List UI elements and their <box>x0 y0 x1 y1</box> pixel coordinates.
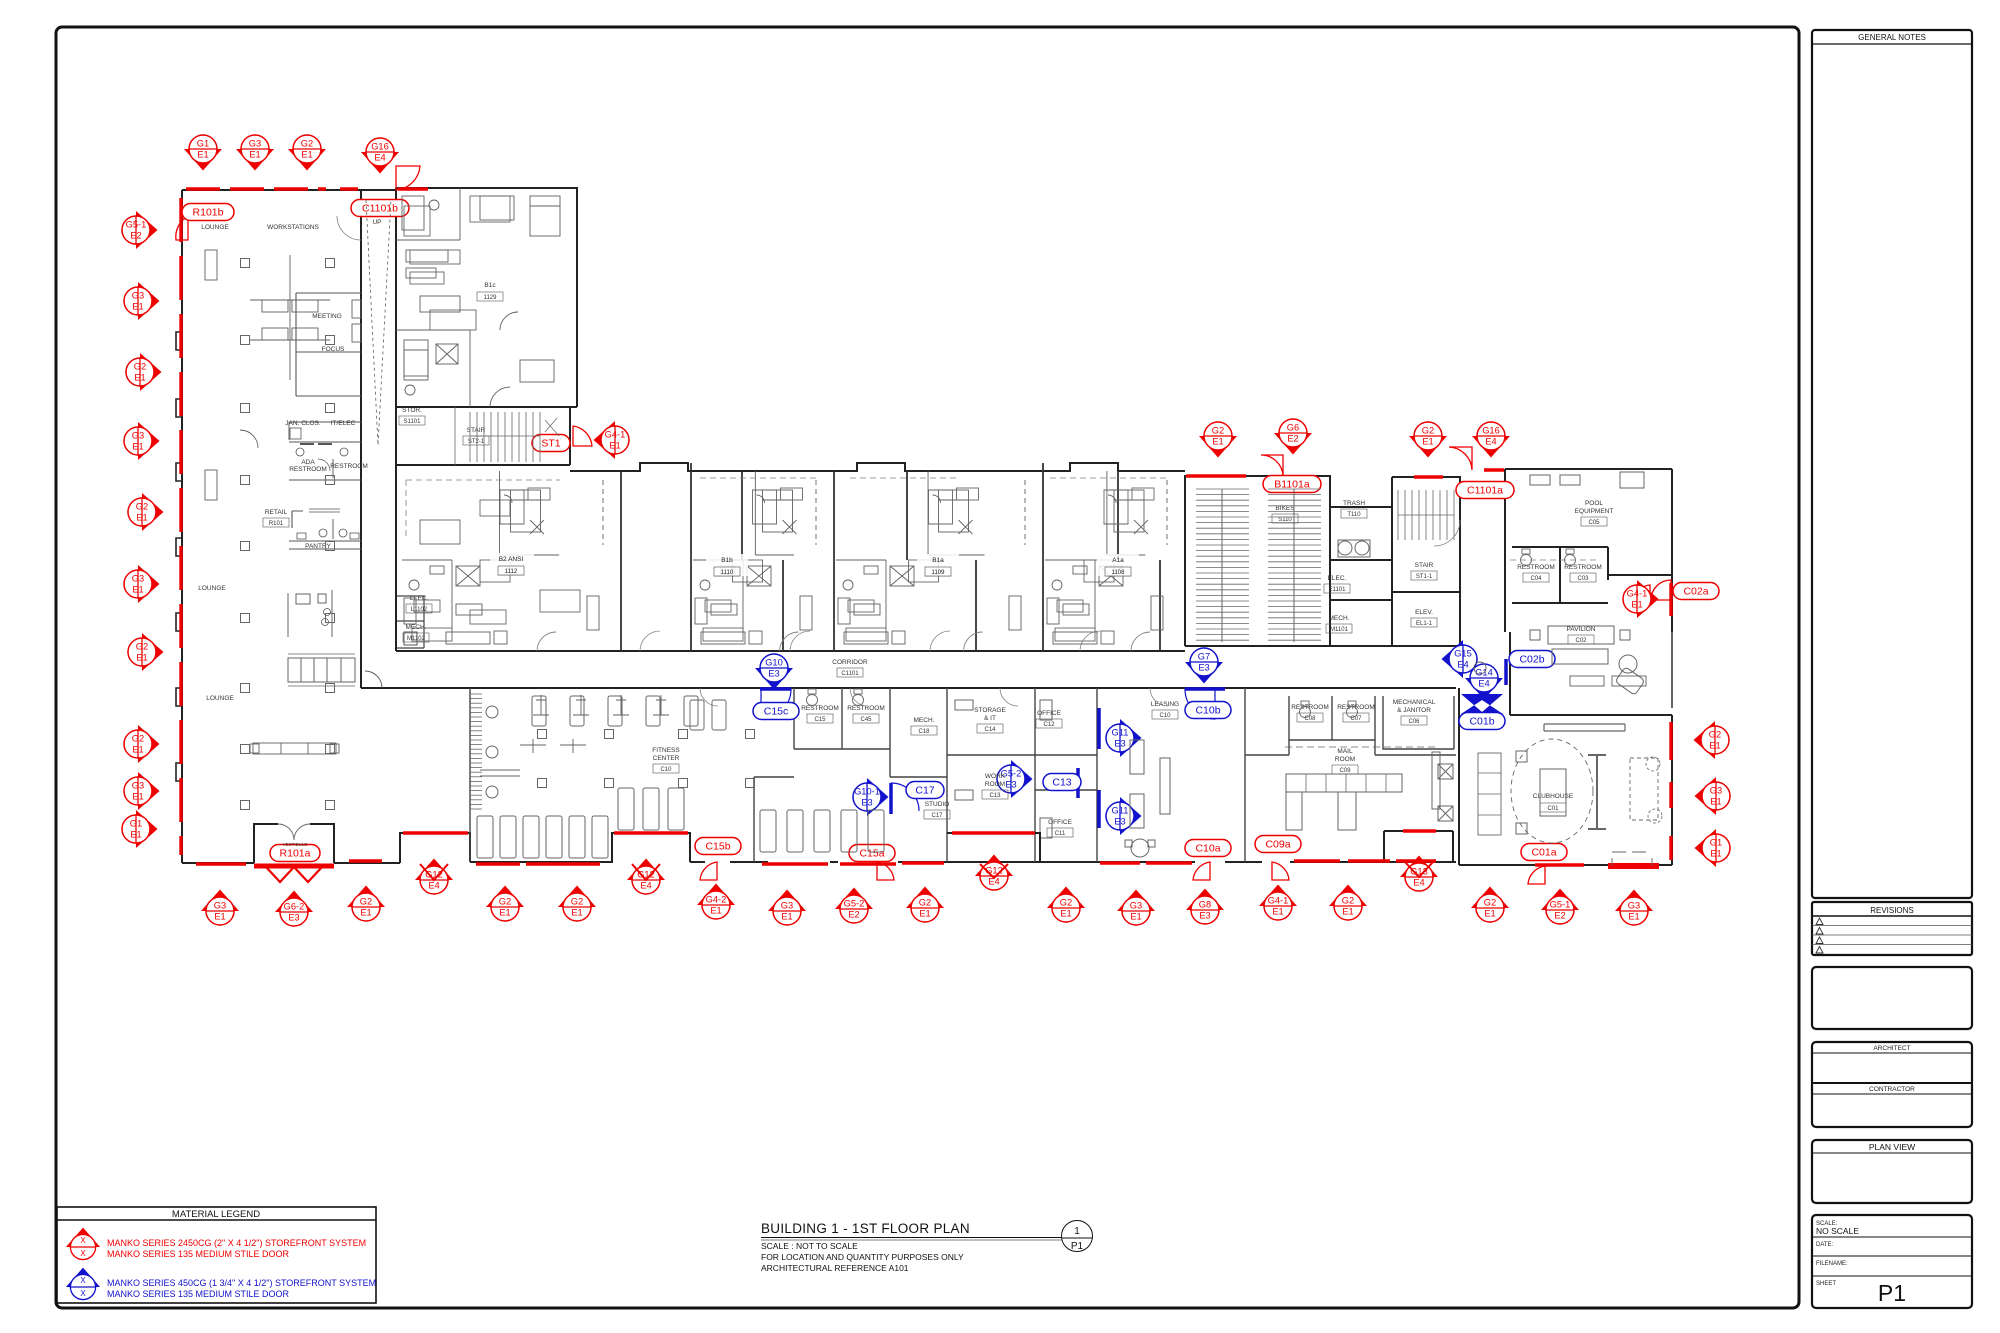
svg-text:DATE:: DATE: <box>1816 1242 1834 1248</box>
svg-text:G12: G12 <box>637 870 655 880</box>
svg-text:G11: G11 <box>1112 728 1129 738</box>
svg-text:G12: G12 <box>425 870 443 880</box>
svg-text:E2: E2 <box>848 910 859 920</box>
svg-text:C09a: C09a <box>1265 839 1290 851</box>
svg-text:C15: C15 <box>814 717 826 723</box>
svg-text:RESTROOM: RESTROOM <box>1517 564 1555 571</box>
svg-text:G8: G8 <box>1199 900 1211 910</box>
svg-text:T110: T110 <box>1347 512 1361 518</box>
svg-text:C12: C12 <box>1043 722 1055 728</box>
svg-text:PANTRY: PANTRY <box>305 543 331 550</box>
svg-text:C1101b: C1101b <box>362 203 398 215</box>
svg-text:C01: C01 <box>1547 806 1559 812</box>
svg-text:C15a: C15a <box>859 848 884 860</box>
svg-text:NO SCALE: NO SCALE <box>1816 1226 1859 1236</box>
svg-text:G2: G2 <box>301 139 313 149</box>
svg-text:E1: E1 <box>249 150 260 160</box>
svg-text:E1: E1 <box>710 906 721 916</box>
svg-text:G4-1: G4-1 <box>1268 896 1289 906</box>
svg-text:X: X <box>80 1289 86 1298</box>
svg-text:E3: E3 <box>768 669 779 679</box>
svg-text:G2: G2 <box>1212 426 1224 436</box>
svg-text:G1: G1 <box>197 139 209 149</box>
svg-text:G3: G3 <box>1628 901 1640 911</box>
svg-text:G4-1: G4-1 <box>1627 589 1648 599</box>
svg-text:G3: G3 <box>1710 786 1722 796</box>
svg-text:E3: E3 <box>1005 780 1016 790</box>
svg-text:MECH.: MECH. <box>914 717 935 724</box>
svg-text:BUILDING 1 - 1ST FLOOR PLAN: BUILDING 1 - 1ST FLOOR PLAN <box>761 1221 970 1236</box>
svg-text:E1: E1 <box>214 912 225 922</box>
svg-text:C18: C18 <box>918 729 930 735</box>
svg-text:E1: E1 <box>1484 909 1495 919</box>
svg-text:G3: G3 <box>132 431 144 441</box>
svg-text:G2: G2 <box>1484 898 1496 908</box>
svg-text:E1: E1 <box>1709 741 1720 751</box>
svg-text:C1101a: C1101a <box>1467 485 1503 497</box>
svg-text:MANKO SERIES 450CG (1 3/4" X 4: MANKO SERIES 450CG (1 3/4" X 4 1/2") STO… <box>107 1278 376 1288</box>
svg-text:E1: E1 <box>1130 912 1141 922</box>
svg-text:MEETING: MEETING <box>312 313 342 320</box>
svg-text:C10b: C10b <box>1195 705 1220 717</box>
svg-text:E1: E1 <box>1212 437 1223 447</box>
svg-text:E1: E1 <box>609 441 620 451</box>
svg-text:E1: E1 <box>1422 437 1433 447</box>
svg-text:VESTIBULE: VESTIBULE <box>283 842 308 847</box>
svg-text:STAIR: STAIR <box>1415 562 1434 569</box>
svg-text:E1: E1 <box>571 908 582 918</box>
svg-text:SHEET: SHEET <box>1816 1281 1836 1287</box>
svg-text:E1: E1 <box>134 373 145 383</box>
svg-text:C17: C17 <box>931 813 943 819</box>
svg-text:WORKSTATIONS: WORKSTATIONS <box>267 224 319 231</box>
svg-text:B1c: B1c <box>484 282 496 289</box>
svg-text:C10: C10 <box>1159 713 1171 719</box>
svg-text:FOR LOCATION AND QUANTITY PURP: FOR LOCATION AND QUANTITY PURPOSES ONLY <box>761 1252 964 1262</box>
svg-text:G2: G2 <box>134 362 146 372</box>
svg-text:E1: E1 <box>919 909 930 919</box>
svg-text:FITNESS: FITNESS <box>652 747 680 754</box>
svg-text:R101b: R101b <box>193 207 224 219</box>
svg-text:MANKO SERIES 135 MEDIUM STILE: MANKO SERIES 135 MEDIUM STILE DOOR <box>107 1289 290 1299</box>
svg-text:E2: E2 <box>1287 434 1298 444</box>
svg-text:E1: E1 <box>1342 907 1353 917</box>
svg-text:E1: E1 <box>1060 909 1071 919</box>
svg-text:G5-2: G5-2 <box>844 899 865 909</box>
svg-text:E1: E1 <box>136 513 147 523</box>
svg-text:E3: E3 <box>861 798 872 808</box>
svg-text:G2: G2 <box>360 897 372 907</box>
svg-text:STOR.: STOR. <box>402 407 422 414</box>
svg-text:E2: E2 <box>1554 911 1565 921</box>
svg-text:R101: R101 <box>269 521 284 527</box>
svg-text:MANKO SERIES 135 MEDIUM STILE: MANKO SERIES 135 MEDIUM STILE DOOR <box>107 1249 290 1259</box>
svg-text:E2: E2 <box>130 231 141 241</box>
svg-text:E1: E1 <box>197 150 208 160</box>
svg-text:G3: G3 <box>132 291 144 301</box>
svg-text:ST1-1: ST1-1 <box>1416 574 1433 580</box>
svg-text:B1a: B1a <box>932 557 944 564</box>
svg-text:E1: E1 <box>132 302 143 312</box>
svg-text:C11: C11 <box>1055 831 1066 837</box>
svg-text:1: 1 <box>1074 1226 1080 1237</box>
svg-text:E1: E1 <box>132 745 143 755</box>
svg-text:C04: C04 <box>1530 576 1542 582</box>
svg-text:G2: G2 <box>571 897 583 907</box>
svg-text:E1: E1 <box>132 585 143 595</box>
svg-text:C14: C14 <box>984 727 996 733</box>
svg-text:G6-2: G6-2 <box>284 902 305 912</box>
svg-text:ELEC.: ELEC. <box>410 595 429 602</box>
svg-text:C10a: C10a <box>1195 843 1220 855</box>
svg-text:G10: G10 <box>765 658 783 668</box>
svg-text:FILENAME:: FILENAME: <box>1816 1261 1848 1267</box>
svg-text:MANKO SERIES 2450CG (2" X 4 1/: MANKO SERIES 2450CG (2" X 4 1/2") STOREF… <box>107 1238 366 1248</box>
svg-text:E4: E4 <box>640 881 651 891</box>
svg-text:SCALE : NOT TO SCALE: SCALE : NOT TO SCALE <box>761 1241 858 1251</box>
svg-text:STAIR: STAIR <box>467 427 486 434</box>
svg-text:ELEV.: ELEV. <box>1415 609 1433 616</box>
svg-text:C10: C10 <box>660 767 672 773</box>
svg-text:E3: E3 <box>1198 663 1209 673</box>
svg-text:STUDIO: STUDIO <box>925 801 950 808</box>
svg-text:C1101: C1101 <box>841 671 859 677</box>
svg-text:E3: E3 <box>1114 817 1125 827</box>
svg-text:E1: E1 <box>1710 797 1721 807</box>
svg-text:1129: 1129 <box>484 295 498 301</box>
svg-text:E1: E1 <box>130 830 141 840</box>
svg-text:G3: G3 <box>781 901 793 911</box>
svg-text:C07: C07 <box>1350 716 1362 722</box>
svg-text:C05: C05 <box>1588 520 1600 526</box>
svg-text:X: X <box>80 1249 86 1258</box>
svg-text:ELEC.: ELEC. <box>1328 575 1347 582</box>
svg-text:C13: C13 <box>989 793 1001 799</box>
svg-text:M1101: M1101 <box>1330 627 1349 633</box>
svg-text:C02a: C02a <box>1683 586 1708 598</box>
svg-text:C03: C03 <box>1577 576 1589 582</box>
svg-text:ST1: ST1 <box>541 438 560 450</box>
svg-text:CENTER: CENTER <box>653 755 680 762</box>
svg-text:E4: E4 <box>428 881 439 891</box>
svg-text:E4: E4 <box>1413 878 1424 888</box>
svg-text:G2: G2 <box>1422 426 1434 436</box>
svg-text:G2: G2 <box>1060 898 1072 908</box>
svg-text:ARCHITECTURAL REFERENCE A101: ARCHITECTURAL REFERENCE A101 <box>761 1263 909 1273</box>
svg-text:G1: G1 <box>130 819 142 829</box>
svg-text:WORK: WORK <box>985 773 1006 780</box>
svg-text:E1: E1 <box>132 442 143 452</box>
svg-text:A1a: A1a <box>1112 557 1124 564</box>
svg-text:GENERAL NOTES: GENERAL NOTES <box>1858 33 1926 42</box>
svg-text:CONTRACTOR: CONTRACTOR <box>1869 1086 1915 1093</box>
svg-text:G1: G1 <box>1710 838 1722 848</box>
svg-text:E1: E1 <box>301 150 312 160</box>
svg-text:& IT: & IT <box>984 715 996 722</box>
svg-text:G2: G2 <box>1342 896 1354 906</box>
svg-text:C02b: C02b <box>1519 654 1544 666</box>
svg-text:C02: C02 <box>1575 638 1587 644</box>
svg-text:E3: E3 <box>288 913 299 923</box>
svg-text:P1: P1 <box>1878 1280 1906 1306</box>
svg-text:ROOM: ROOM <box>1335 756 1355 763</box>
svg-text:& JANITOR: & JANITOR <box>1397 707 1431 714</box>
svg-text:S110: S110 <box>1278 517 1292 523</box>
svg-text:C09: C09 <box>1339 768 1351 774</box>
svg-text:PAVILION: PAVILION <box>1566 626 1595 633</box>
svg-text:EQUIPMENT: EQUIPMENT <box>1575 508 1614 515</box>
svg-text:C01b: C01b <box>1469 716 1494 728</box>
svg-text:G6: G6 <box>1287 423 1299 433</box>
svg-text:1110: 1110 <box>721 570 734 576</box>
svg-text:1108: 1108 <box>1112 570 1126 576</box>
svg-text:ROOM: ROOM <box>985 781 1005 788</box>
svg-text:B2 ANSI: B2 ANSI <box>499 556 524 563</box>
svg-text:CLUBHOUSE: CLUBHOUSE <box>1533 793 1574 800</box>
svg-text:G3: G3 <box>1130 901 1142 911</box>
svg-text:E1: E1 <box>1628 912 1639 922</box>
svg-text:E1: E1 <box>1272 907 1283 917</box>
svg-text:E4: E4 <box>1485 437 1496 447</box>
svg-text:TRASH: TRASH <box>1343 500 1365 507</box>
svg-text:FOCUS: FOCUS <box>322 346 345 353</box>
svg-text:E4: E4 <box>374 153 385 163</box>
svg-text:C13: C13 <box>1052 777 1071 789</box>
svg-text:G5-1: G5-1 <box>1550 900 1571 910</box>
svg-text:MAIL: MAIL <box>1337 748 1353 755</box>
svg-text:R101a: R101a <box>280 848 311 860</box>
svg-text:1112: 1112 <box>505 569 518 575</box>
svg-text:RESTROOM: RESTROOM <box>330 463 368 470</box>
svg-text:B1b: B1b <box>721 557 733 564</box>
svg-text:OFFICE: OFFICE <box>1037 710 1061 717</box>
svg-text:G10-1: G10-1 <box>854 787 880 797</box>
svg-text:G4-1: G4-1 <box>605 430 626 440</box>
svg-text:CORRIDOR: CORRIDOR <box>832 659 868 666</box>
svg-text:G2: G2 <box>136 642 148 652</box>
svg-text:LOUNGE: LOUNGE <box>206 695 234 702</box>
svg-text:RESTROOM: RESTROOM <box>289 466 327 473</box>
svg-text:X: X <box>80 1276 86 1285</box>
svg-text:MATERIAL LEGEND: MATERIAL LEGEND <box>172 1209 260 1220</box>
svg-text:MECH.: MECH. <box>1329 615 1350 622</box>
svg-text:C01a: C01a <box>1531 847 1556 859</box>
svg-text:MECHANICAL: MECHANICAL <box>1393 699 1436 706</box>
svg-text:E1: E1 <box>136 653 147 663</box>
svg-text:G3: G3 <box>132 574 144 584</box>
svg-text:E1: E1 <box>499 908 510 918</box>
svg-text:E4: E4 <box>1457 660 1468 670</box>
svg-text:C15c: C15c <box>764 706 789 718</box>
svg-text:E1: E1 <box>360 908 371 918</box>
svg-text:C17: C17 <box>915 785 934 797</box>
svg-text:G2: G2 <box>132 734 144 744</box>
svg-text:G2: G2 <box>499 897 511 907</box>
svg-text:G5-1: G5-1 <box>126 220 147 230</box>
svg-text:E3: E3 <box>1114 739 1125 749</box>
svg-text:E1: E1 <box>132 792 143 802</box>
svg-text:G4-2: G4-2 <box>706 895 727 905</box>
svg-text:IT/ELEC: IT/ELEC <box>331 420 356 427</box>
svg-text:G7: G7 <box>1198 652 1210 662</box>
svg-text:POOL: POOL <box>1585 500 1603 507</box>
svg-text:E1: E1 <box>781 912 792 922</box>
svg-text:G15: G15 <box>1454 649 1472 659</box>
svg-text:REVISIONS: REVISIONS <box>1870 906 1914 915</box>
svg-text:P1: P1 <box>1071 1241 1084 1252</box>
svg-text:EL1-1: EL1-1 <box>1416 621 1433 627</box>
svg-text:G16: G16 <box>1482 426 1500 436</box>
svg-text:S1101: S1101 <box>404 419 422 425</box>
svg-text:1109: 1109 <box>932 570 946 576</box>
svg-text:G3: G3 <box>132 781 144 791</box>
svg-text:UP: UP <box>372 219 381 226</box>
svg-text:G11: G11 <box>1112 806 1129 816</box>
svg-text:G2: G2 <box>919 898 931 908</box>
svg-text:X: X <box>80 1236 86 1245</box>
svg-text:ARCHITECT: ARCHITECT <box>1873 1045 1910 1052</box>
svg-text:STORAGE: STORAGE <box>974 707 1006 714</box>
svg-text:E1: E1 <box>1710 849 1721 859</box>
svg-text:G2: G2 <box>136 502 148 512</box>
svg-text:G3: G3 <box>249 139 261 149</box>
svg-text:E3: E3 <box>1199 911 1210 921</box>
svg-text:G3: G3 <box>214 901 226 911</box>
svg-text:RETAIL: RETAIL <box>265 509 288 516</box>
svg-text:LOUNGE: LOUNGE <box>201 224 229 231</box>
svg-text:E1101: E1101 <box>1329 587 1347 593</box>
svg-text:ADA: ADA <box>301 459 315 466</box>
svg-text:LEASING: LEASING <box>1151 701 1179 708</box>
svg-text:E4: E4 <box>1478 679 1489 689</box>
svg-text:C06: C06 <box>1408 719 1420 725</box>
svg-text:E1: E1 <box>1631 600 1642 610</box>
svg-text:JAN. CLOS.: JAN. CLOS. <box>285 420 321 427</box>
svg-text:RESTROOM: RESTROOM <box>801 705 839 712</box>
svg-text:LOUNGE: LOUNGE <box>198 585 226 592</box>
svg-text:G16: G16 <box>371 142 389 152</box>
svg-text:C45: C45 <box>860 717 872 723</box>
svg-text:C15b: C15b <box>705 841 730 853</box>
svg-text:PLAN VIEW: PLAN VIEW <box>1869 1142 1915 1152</box>
svg-text:G2: G2 <box>1709 730 1721 740</box>
svg-text:MECH.: MECH. <box>406 624 427 631</box>
